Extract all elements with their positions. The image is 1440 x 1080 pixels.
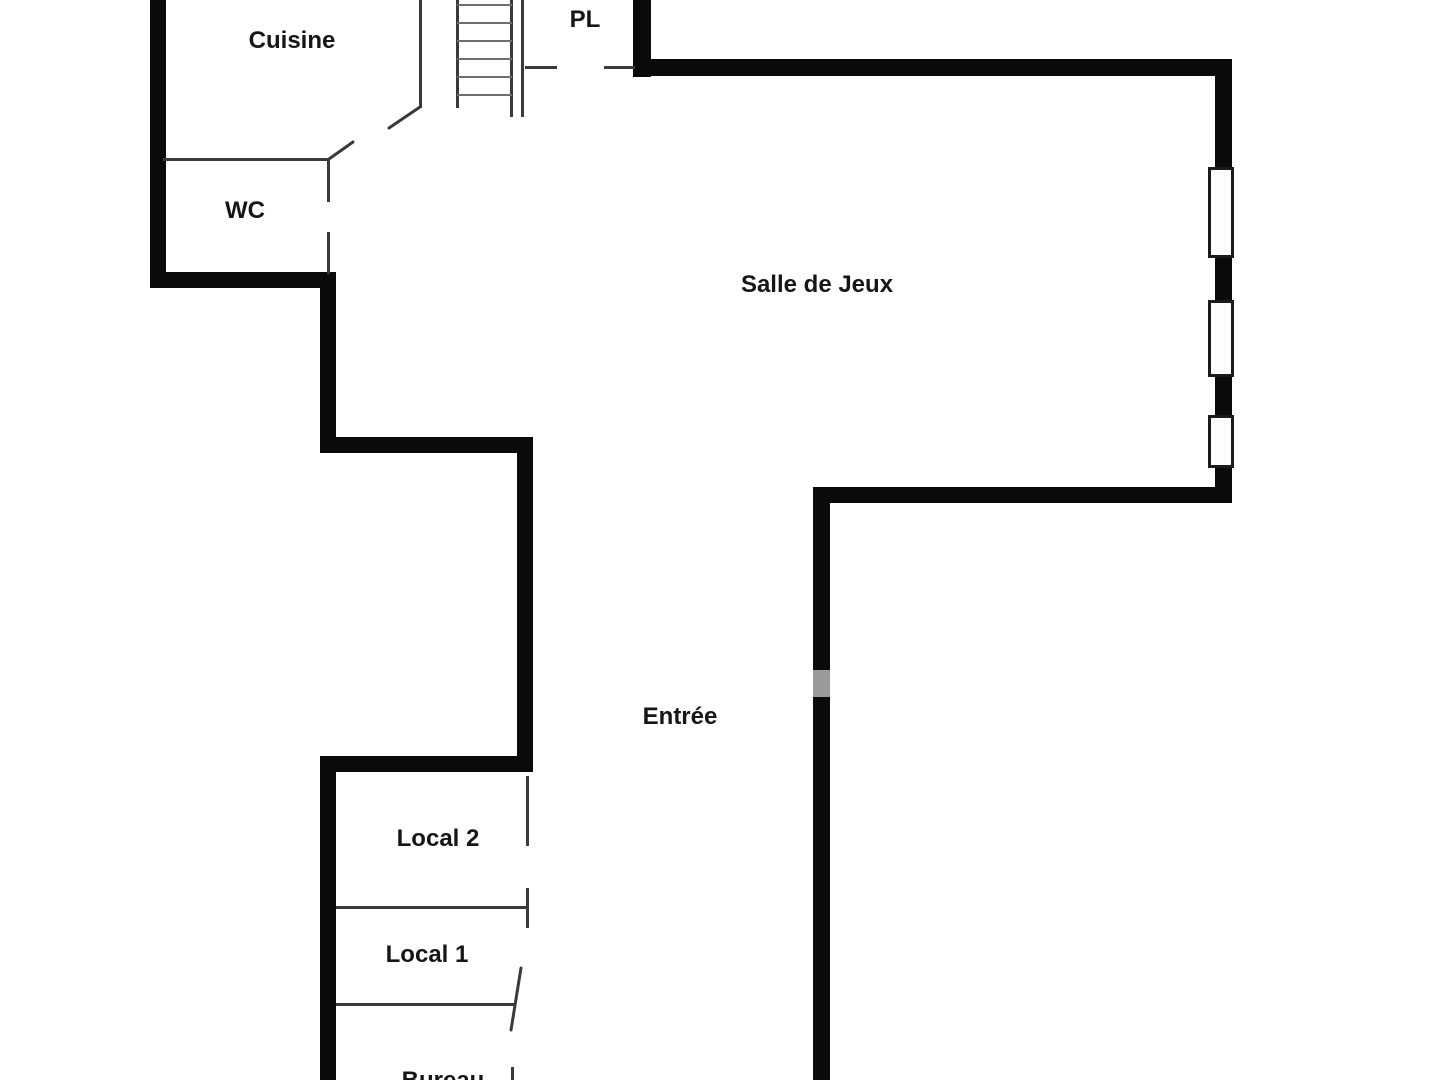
room-label-entree: Entrée [643, 703, 718, 731]
wc-bottom-wall [150, 272, 335, 288]
cuisine-door-upper-jamb [389, 107, 420, 128]
wall-smudge-patch [813, 670, 830, 697]
mid-horizontal-wall [320, 437, 533, 453]
corridor-right-vertical-wall [813, 487, 830, 1080]
room-label-pl: PL [570, 6, 601, 34]
local2-local1-divider [336, 906, 528, 909]
salle-de-jeux-bottom-wall [813, 487, 1232, 503]
stair-outer-line [521, 0, 524, 117]
local1-door-leaf [511, 968, 521, 1030]
stair-rung [457, 22, 512, 24]
pl-bottom-wall-right [604, 66, 635, 69]
room-label-cuisine: Cuisine [249, 27, 336, 55]
locaux-top-wall [320, 756, 533, 772]
room-label-bureau: Bureau [402, 1067, 485, 1080]
wc-right-wall-lower [327, 232, 330, 274]
salle-de-jeux-top-wall [633, 59, 1232, 76]
floor-plan-canvas: CuisinePLWCSalle de JeuxEntréeLocal 2Loc… [0, 0, 1440, 1080]
pl-bottom-wall-left [525, 66, 557, 69]
locaux-left-vertical-wall [320, 756, 336, 1080]
room-label-salle-de-jeux: Salle de Jeux [741, 271, 893, 299]
bureau-door-jamb [511, 1067, 514, 1080]
wc-right-wall-upper [327, 158, 330, 202]
corridor-left-vertical-wall [517, 437, 533, 772]
local2-right-wall [526, 776, 529, 846]
local1-bureau-divider [336, 1003, 514, 1006]
stair-rung [457, 4, 512, 6]
stair-rung [457, 94, 512, 96]
window-1 [1208, 167, 1234, 258]
stair-rung [457, 40, 512, 42]
wc-top-wall [163, 158, 330, 161]
stair-rung [457, 76, 512, 78]
stair-left-stringer [456, 0, 459, 108]
cuisine-right-wall [419, 0, 422, 108]
left-wall-cuisine-wc [150, 0, 166, 288]
window-3 [1208, 415, 1234, 468]
stair-rung [457, 58, 512, 60]
room-label-wc: WC [225, 197, 265, 225]
room-label-local-2: Local 2 [397, 825, 480, 853]
local1-door-jamb [526, 888, 529, 928]
room-label-local-1: Local 1 [386, 941, 469, 969]
window-2 [1208, 300, 1234, 377]
cuisine-door-lower-jamb [329, 142, 353, 159]
mid-left-vertical-wall [320, 272, 336, 453]
